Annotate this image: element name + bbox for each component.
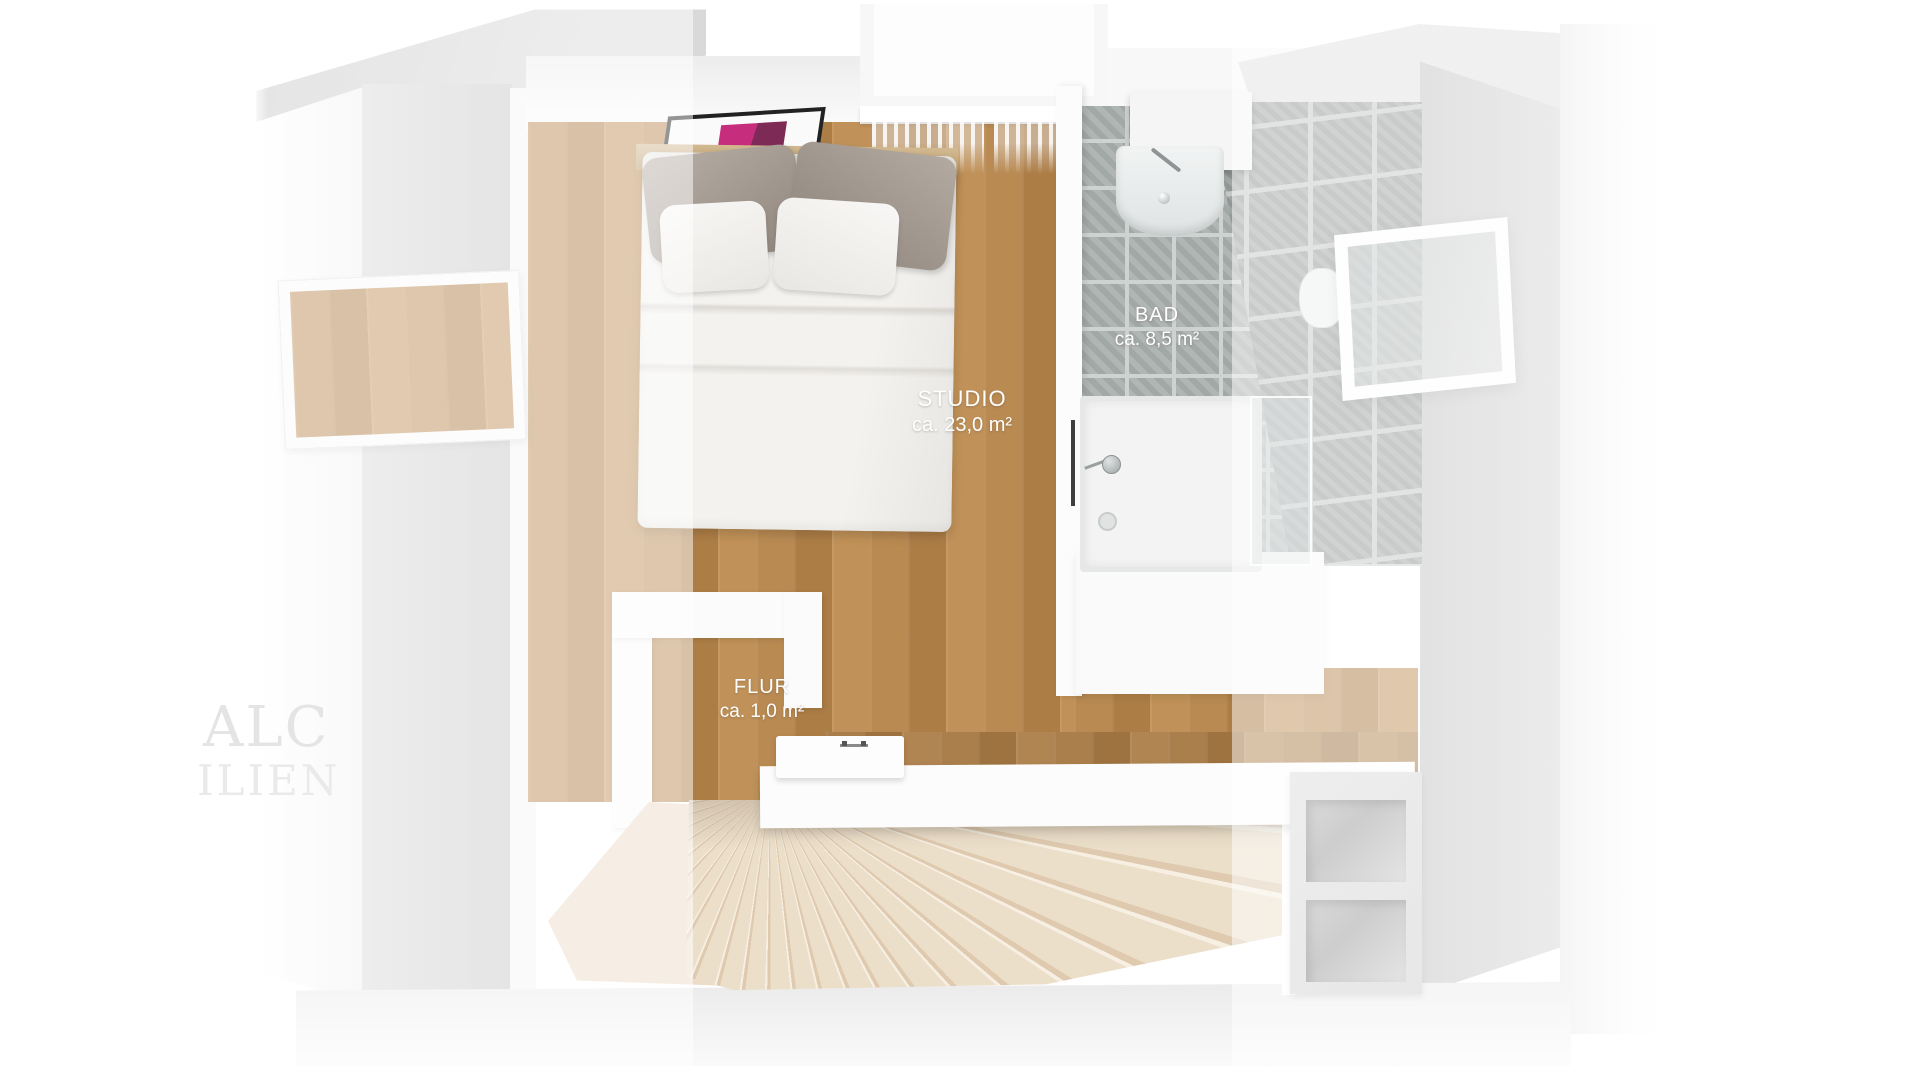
wall-block-below-bath bbox=[1076, 552, 1324, 694]
shower-tray bbox=[1080, 396, 1262, 572]
outer-floor-bottom bbox=[296, 982, 1571, 1066]
washbasin bbox=[1116, 146, 1224, 236]
towel-rail bbox=[1071, 420, 1075, 506]
faucet bbox=[1158, 192, 1170, 204]
pillow-white-right bbox=[772, 197, 900, 297]
pillow-white-left bbox=[659, 200, 770, 294]
shower-drain bbox=[1098, 512, 1117, 531]
interior-wall-right bbox=[1420, 52, 1562, 1004]
winder-staircase bbox=[686, 800, 1286, 992]
handrail-bracket bbox=[840, 744, 868, 757]
stair-handrail bbox=[776, 736, 904, 778]
flur-wall-right bbox=[784, 592, 822, 708]
shower-head bbox=[1102, 455, 1121, 474]
flur-wall-top bbox=[612, 592, 792, 638]
open-roof-window bbox=[1334, 217, 1516, 401]
shelf-unit bbox=[1290, 772, 1422, 994]
shelf-cubby-top bbox=[1306, 800, 1406, 882]
shelf-cubby-bottom bbox=[1306, 900, 1406, 982]
dormer-window-glass bbox=[874, 4, 1094, 96]
outer-wall-right bbox=[1560, 24, 1692, 1034]
interior-wall-left bbox=[362, 84, 512, 1012]
double-bed bbox=[637, 152, 956, 532]
dormer-alcove bbox=[278, 271, 525, 449]
outer-wall-left bbox=[254, 86, 366, 1006]
shower-glass-panel bbox=[1250, 396, 1312, 566]
floor-plan-render: ALC ILIEN STUDIO ca. 23,0 m² BAD ca. 8,5… bbox=[0, 0, 1920, 1080]
